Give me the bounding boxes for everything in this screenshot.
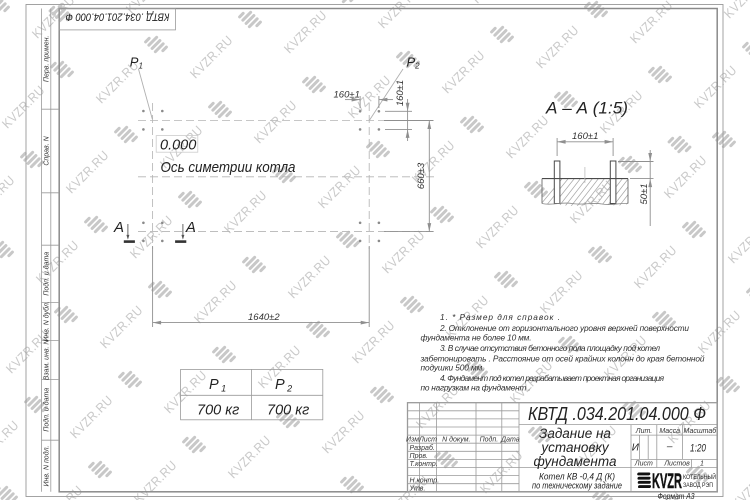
svg-text:установку: установку — [540, 440, 609, 455]
svg-text:Инв. N дубл.: Инв. N дубл. — [43, 301, 51, 342]
svg-text:Задание на: Задание на — [539, 426, 611, 441]
svg-text:КВТД .034.201.04.000 Ф: КВТД .034.201.04.000 Ф — [65, 11, 169, 23]
svg-text:N докум.: N докум. — [442, 436, 470, 444]
svg-text:Т.контр.: Т.контр. — [410, 461, 438, 468]
svg-text:Взам. инв. N: Взам. инв. N — [44, 339, 51, 381]
svg-text:Подп. и дата: Подп. и дата — [43, 388, 51, 432]
svg-text:160±1: 160±1 — [572, 131, 598, 142]
svg-text:660±3: 660±3 — [416, 162, 427, 189]
svg-text:по нагрузкам на фундамент .: по нагрузкам на фундамент . — [421, 382, 531, 392]
svg-text:4. Фундамент под котел разраба: 4. Фундамент под котел разрабатывает про… — [440, 373, 665, 383]
svg-text:Дата: Дата — [500, 437, 520, 444]
svg-text:Лит.: Лит. — [635, 428, 652, 435]
svg-text:Масса: Масса — [659, 428, 680, 435]
svg-text:50±1: 50±1 — [639, 183, 650, 204]
svg-text:160±1: 160±1 — [395, 80, 406, 106]
svg-text:Ось симетрии котла: Ось симетрии котла — [161, 160, 296, 176]
svg-text:Справ. N: Справ. N — [44, 135, 51, 165]
svg-text:Подп.: Подп. — [480, 436, 499, 444]
svg-text:И: И — [632, 443, 640, 454]
svg-text:Масштаб: Масштаб — [684, 427, 718, 435]
svg-text:Подп. и дата: Подп. и дата — [43, 252, 51, 296]
svg-text:700 кг: 700 кг — [267, 403, 309, 419]
svg-text:2. Отклонение от горизонтально: 2. Отклонение от горизонтального уровня … — [439, 323, 689, 333]
svg-text:1. * Размер для справок .: 1. * Размер для справок . — [440, 312, 560, 322]
svg-text:Лист: Лист — [418, 437, 437, 444]
svg-text:подушки 500 мм.: подушки 500 мм. — [421, 362, 485, 372]
svg-text:Н.контр.: Н.контр. — [410, 477, 440, 484]
svg-text:1: 1 — [700, 461, 704, 468]
svg-text:А: А — [113, 219, 124, 236]
svg-text:700 кг: 700 кг — [197, 403, 239, 419]
svg-text:Листов: Листов — [663, 461, 690, 468]
svg-text:Лист: Лист — [634, 461, 653, 468]
svg-text:КВТД .034.201.04.000 Ф: КВТД .034.201.04.000 Ф — [528, 404, 706, 424]
svg-text:ЗАВОД РЭП: ЗАВОД РЭП — [683, 482, 713, 489]
svg-text:160±1: 160±1 — [334, 90, 360, 101]
svg-text:1:20: 1:20 — [690, 443, 707, 455]
svg-text:3. В случае отсутствия бетонно: 3. В случае отсутствия бетонного пола пл… — [440, 343, 660, 353]
svg-text:КОТЕЛЬНЫЙ: КОТЕЛЬНЫЙ — [683, 472, 716, 481]
svg-text:фундамента: фундамента — [534, 454, 617, 469]
svg-text:Перв. примен.: Перв. примен. — [44, 35, 51, 82]
svg-text:0.000: 0.000 — [160, 138, 196, 154]
svg-text:–: – — [666, 442, 673, 453]
svg-text:1640±2: 1640±2 — [248, 312, 280, 323]
svg-text:Инв. N подл.: Инв. N подл. — [43, 445, 51, 486]
svg-text:фундамента не более 10 мм.: фундамента не более 10 мм. — [421, 332, 532, 342]
svg-text:А – А (1:5): А – А (1:5) — [545, 100, 628, 118]
svg-text:Пров.: Пров. — [410, 453, 429, 460]
svg-text:Утв.: Утв. — [409, 485, 426, 492]
svg-text:Формат А3: Формат А3 — [658, 491, 695, 500]
svg-text:А: А — [185, 219, 196, 236]
svg-text:по техническому задание: по техническому задание — [532, 481, 622, 491]
svg-text:KVZR: KVZR — [652, 470, 682, 493]
svg-text:Разраб.: Разраб. — [410, 444, 435, 452]
